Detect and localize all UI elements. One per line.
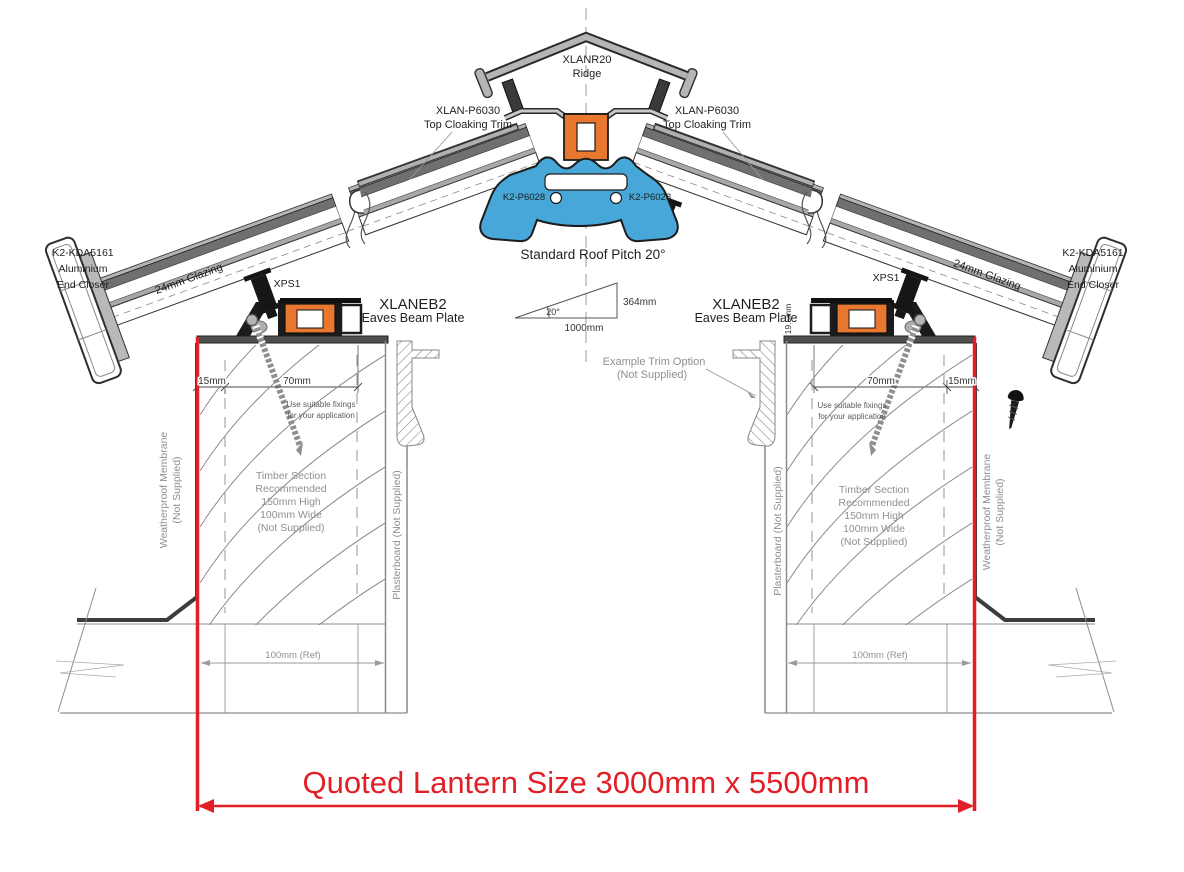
- membrane-l2-right: (Not Supplied): [994, 478, 1006, 545]
- membrane-l2-left: (Not Supplied): [171, 456, 183, 523]
- timber-l2-right: Recommended: [838, 497, 909, 509]
- trim-option-line1: Example Trim Option: [603, 356, 706, 368]
- timber-l5-left: (Not Supplied): [257, 522, 324, 534]
- end-closer-l2-right: Aluminium: [1068, 263, 1117, 275]
- beam-height-dim: 19.5mm: [783, 304, 793, 335]
- ridge-plate-left: K2-P6028: [503, 192, 545, 203]
- timber-l4-left: 100mm Wide: [260, 509, 322, 521]
- timber-l3-right: 150mm High: [844, 510, 904, 522]
- cloaking-name-right: Top Cloaking Trim: [663, 119, 751, 131]
- ridge-part-label: XLANR20: [563, 54, 612, 66]
- cloaking-name-left: Top Cloaking Trim: [424, 119, 512, 131]
- left-side: [44, 67, 542, 811]
- membrane-l1-right: Weatherproof Membrane: [981, 454, 993, 571]
- dim-15-left: 15mm: [198, 376, 226, 387]
- membrane-l1-left: Weatherproof Membrane: [158, 432, 170, 549]
- quote-dimension: [198, 799, 974, 813]
- ridge-name-label: Ridge: [573, 68, 602, 80]
- drawing-canvas: XLANR20 Ridge Standard Roof Pitch 20° 20…: [0, 0, 1184, 872]
- timber-l4-right: 100mm Wide: [843, 523, 905, 535]
- fixing-note-l2-left: for your application: [287, 411, 355, 420]
- plasterboard-right: Plasterboard (Not Supplied): [772, 466, 784, 596]
- end-closer-part-right: K2-KDA5161: [1062, 247, 1123, 259]
- end-closer-part-left: K2-KDA5161: [52, 247, 113, 259]
- ridge-plate-right: K2-P6028: [629, 192, 671, 203]
- pitch-angle: 20°: [546, 307, 560, 317]
- xps-label-left: XPS1: [274, 278, 301, 290]
- timber-l5-right: (Not Supplied): [840, 536, 907, 548]
- cloaking-part-left: XLAN-P6030: [436, 105, 500, 117]
- timber-l1-right: Timber Section: [839, 484, 909, 496]
- end-closer-l3-right: End Closer: [1067, 279, 1119, 291]
- fixing-note-l1-left: Use suitable fixings: [287, 400, 356, 409]
- cloaking-part-right: XLAN-P6030: [675, 105, 739, 117]
- plasterboard-left: Plasterboard (Not Supplied): [391, 470, 403, 600]
- ref-dim-left: 100mm (Ref): [265, 650, 320, 661]
- pitch-triangle: [515, 283, 617, 318]
- right-side: [630, 67, 1128, 811]
- timber-l3-left: 150mm High: [261, 496, 321, 508]
- xps-label-right: XPS1: [873, 272, 900, 284]
- pitch-caption: Standard Roof Pitch 20°: [521, 247, 666, 262]
- ref-dim-right: 100mm (Ref): [852, 650, 907, 661]
- dim-70-left: 70mm: [283, 376, 311, 387]
- screw-icon: [1002, 389, 1025, 431]
- ridge-thermal-break: [564, 114, 608, 160]
- dim-70-right: 70mm: [867, 376, 895, 387]
- eaves-name-left: Eaves Beam Plate: [362, 311, 465, 325]
- fixing-note-l2-right: for your application: [818, 412, 886, 421]
- end-closer-l2-left: Aluminium: [58, 263, 107, 275]
- dim-15-right: 15mm: [948, 376, 976, 387]
- pitch-rise: 364mm: [623, 297, 656, 308]
- end-closer-l3-left: End Closer: [57, 279, 109, 291]
- roof-lantern-section-drawing: XLANR20 Ridge Standard Roof Pitch 20° 20…: [0, 0, 1184, 872]
- pitch-run: 1000mm: [565, 323, 604, 334]
- fixing-note-l1-right: Use suitable fixings: [818, 401, 887, 410]
- timber-l2-left: Recommended: [255, 483, 326, 495]
- quoted-size-label: Quoted Lantern Size 3000mm x 5500mm: [303, 765, 870, 800]
- timber-l1-left: Timber Section: [256, 470, 326, 482]
- trim-option-line2: (Not Supplied): [617, 369, 687, 381]
